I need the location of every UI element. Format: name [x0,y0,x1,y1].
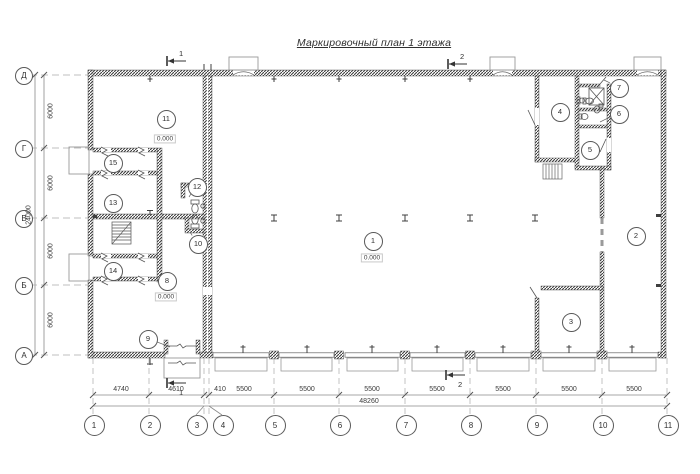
dim-bottom-7: 5500 [495,386,511,393]
svg-text:1: 1 [179,388,183,397]
section-mark-glyph: 2 [444,369,470,389]
dim-bottom-3: 5500 [236,386,252,393]
section-mark-glyph: 2 [446,51,472,71]
level-mark-1: 0.000 [361,253,383,262]
room-number-8: 8 [158,272,177,291]
room-number-2: 2 [627,227,646,246]
section-mark-1-top: 1 [165,48,191,73]
svg-text:2: 2 [458,380,462,389]
svg-text:1: 1 [179,49,183,58]
room-number-1: 1 [364,232,383,251]
room-number-3: 3 [562,313,581,332]
room-number-4: 4 [551,103,570,122]
axis-row-circle-Б: Б [15,277,33,295]
axis-col-circle-10: 10 [593,415,614,436]
section-mark-2-bottom: 2 [444,369,470,394]
axis-col-circle-4: 4 [213,415,234,436]
room-number-15: 15 [104,154,123,173]
room-number-6: 6 [610,105,629,124]
axis-row-circle-Г: Г [15,140,33,158]
room-number-13: 13 [104,194,123,213]
axis-col-circle-7: 7 [396,415,417,436]
dim-left-3: 6000 [48,312,55,328]
room-number-12: 12 [188,178,207,197]
dim-bottom-0: 4740 [113,386,129,393]
axis-col-circle-9: 9 [527,415,548,436]
section-mark-1-bottom: 1 [165,377,191,402]
axis-col-circle-2: 2 [140,415,161,436]
room-number-7: 7 [610,79,629,98]
dim-left-0: 6000 [48,103,55,119]
dim-left-1: 6000 [48,175,55,191]
svg-text:2: 2 [460,52,464,61]
room-number-10: 10 [189,235,208,254]
level-mark-0: 0.000 [154,134,176,143]
section-mark-glyph: 1 [165,377,191,397]
dim-bottom-4: 5500 [299,386,315,393]
room-number-9: 9 [139,330,158,349]
axis-row-circle-А: А [15,347,33,365]
level-mark-2: 0.000 [155,292,177,301]
dim-left-total: 24000 [26,205,33,224]
axis-col-circle-5: 5 [265,415,286,436]
axis-col-circle-11: 11 [658,415,679,436]
axis-row-circle-Д: Д [15,67,33,85]
section-mark-glyph: 1 [165,48,191,68]
dim-bottom-8: 5500 [561,386,577,393]
axis-col-circle-8: 8 [461,415,482,436]
dim-bottom-6: 5500 [429,386,445,393]
axis-col-circle-1: 1 [84,415,105,436]
dim-bottom-9: 5500 [626,386,642,393]
room-number-11: 11 [157,110,176,129]
drawing-title: Маркировочный план 1 этажа [297,37,451,49]
floor-plan-sheet: Маркировочный план 1 этажа ДГВБА12345678… [0,0,700,474]
section-mark-2-top: 2 [446,51,472,76]
room-number-14: 14 [104,262,123,281]
dim-left-2: 6000 [48,243,55,259]
room-number-5: 5 [581,141,600,160]
axis-col-circle-6: 6 [330,415,351,436]
dim-bottom-2: 410 [214,386,226,393]
annotation-overlay: Маркировочный план 1 этажа ДГВБА12345678… [0,0,700,474]
dim-bottom-total: 48260 [359,398,378,405]
dim-bottom-5: 5500 [364,386,380,393]
axis-col-circle-3: 3 [187,415,208,436]
